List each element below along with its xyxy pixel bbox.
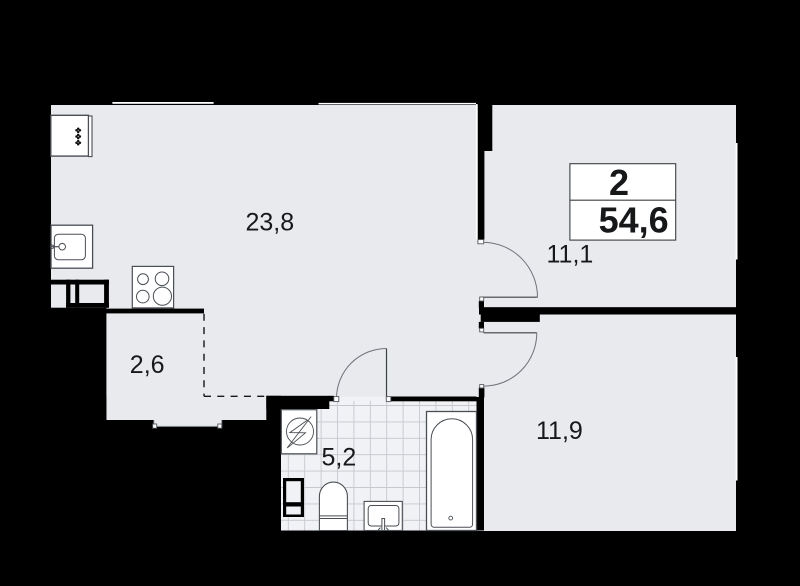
svg-text:11,1: 11,1 bbox=[547, 241, 594, 269]
svg-text:23,8: 23,8 bbox=[246, 209, 295, 237]
svg-text:2: 2 bbox=[609, 162, 629, 203]
svg-text:11,9: 11,9 bbox=[536, 417, 583, 445]
svg-text:54,6: 54,6 bbox=[599, 199, 669, 240]
svg-text:2,6: 2,6 bbox=[130, 351, 165, 379]
svg-text:5,2: 5,2 bbox=[322, 444, 357, 472]
